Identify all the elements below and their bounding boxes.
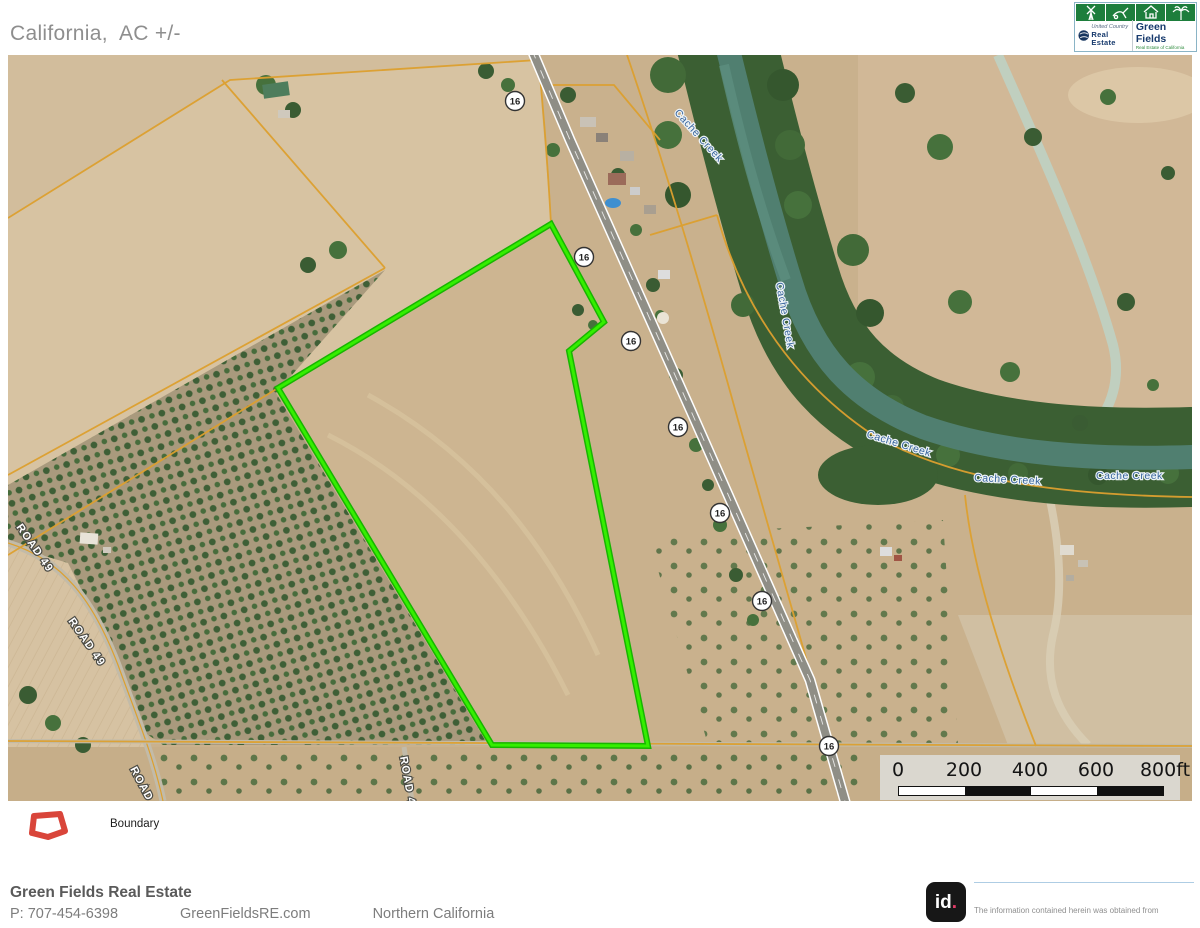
brand-bottom-row: United Country Real Estate Green Fields … xyxy=(1076,21,1195,50)
legend: Boundary xyxy=(0,801,1200,851)
disclaimer-line: The information contained herein was obt… xyxy=(974,906,1194,916)
route-shield-label: 16 xyxy=(510,97,521,108)
real-estate-label: Real Estate xyxy=(1091,31,1129,47)
route-shield-label: 16 xyxy=(626,337,637,348)
scale-label-400: 400 xyxy=(1012,759,1048,781)
route-shield-label: 16 xyxy=(673,423,684,434)
globe-icon xyxy=(1078,29,1089,42)
scale-bar: 0 200 400 600 800ft xyxy=(880,755,1180,800)
region: Northern California xyxy=(373,906,495,922)
house-icon xyxy=(1136,4,1165,21)
footer: Green Fields Real Estate P: 707-454-6398… xyxy=(0,872,1200,928)
scale-label-0: 0 xyxy=(892,759,904,781)
bottom-strip-trees xyxy=(158,749,858,801)
company-name: Green Fields Real Estate xyxy=(10,884,494,902)
route-shield-label: 16 xyxy=(757,597,768,608)
brand-tagline: Real Estate of California xyxy=(1136,45,1192,50)
land-id-logo: id. xyxy=(926,882,966,922)
route-shield-label: 16 xyxy=(824,742,835,753)
page-title: California, AC +/- xyxy=(10,22,181,46)
creek-label: Cache Creek xyxy=(1096,470,1163,482)
scale-label-800: 800ft xyxy=(1140,759,1190,781)
scale-label-200: 200 xyxy=(946,759,982,781)
united-country-logo: United Country Real Estate xyxy=(1076,20,1133,51)
route-shield-label: 16 xyxy=(715,509,726,520)
boundary-icon xyxy=(26,810,72,840)
scale-label-600: 600 xyxy=(1078,759,1114,781)
contact-row: P: 707-454-6398GreenFieldsRE.comNorthern… xyxy=(10,906,494,922)
brand-name: Green Fields xyxy=(1136,21,1192,45)
aerial-map[interactable]: 16 16 16 16 16 16 16 Cache Creek Cache C… xyxy=(8,55,1192,801)
page: California, AC +/- xyxy=(0,0,1200,928)
land-id-logo-text: id xyxy=(935,893,952,912)
aerial-map-canvas: 16 16 16 16 16 16 16 Cache Creek Cache C… xyxy=(8,55,1192,801)
land-id-logo-dot: . xyxy=(952,893,957,912)
brand-icon-row xyxy=(1076,4,1195,21)
route-shield-label: 16 xyxy=(579,253,590,264)
header: California, AC +/- xyxy=(0,0,1200,55)
website: GreenFieldsRE.com xyxy=(180,906,311,922)
brand-logo: United Country Real Estate Green Fields … xyxy=(1074,2,1197,52)
scale-bar-segments xyxy=(898,786,1164,796)
disclaimer: The information contained herein was obt… xyxy=(974,882,1194,928)
plow-icon xyxy=(1106,4,1135,21)
boundary-legend-label: Boundary xyxy=(110,818,159,830)
phone-number: P: 707-454-6398 xyxy=(10,906,118,922)
windmill-icon xyxy=(1076,4,1105,21)
tree-icon xyxy=(1166,4,1195,21)
